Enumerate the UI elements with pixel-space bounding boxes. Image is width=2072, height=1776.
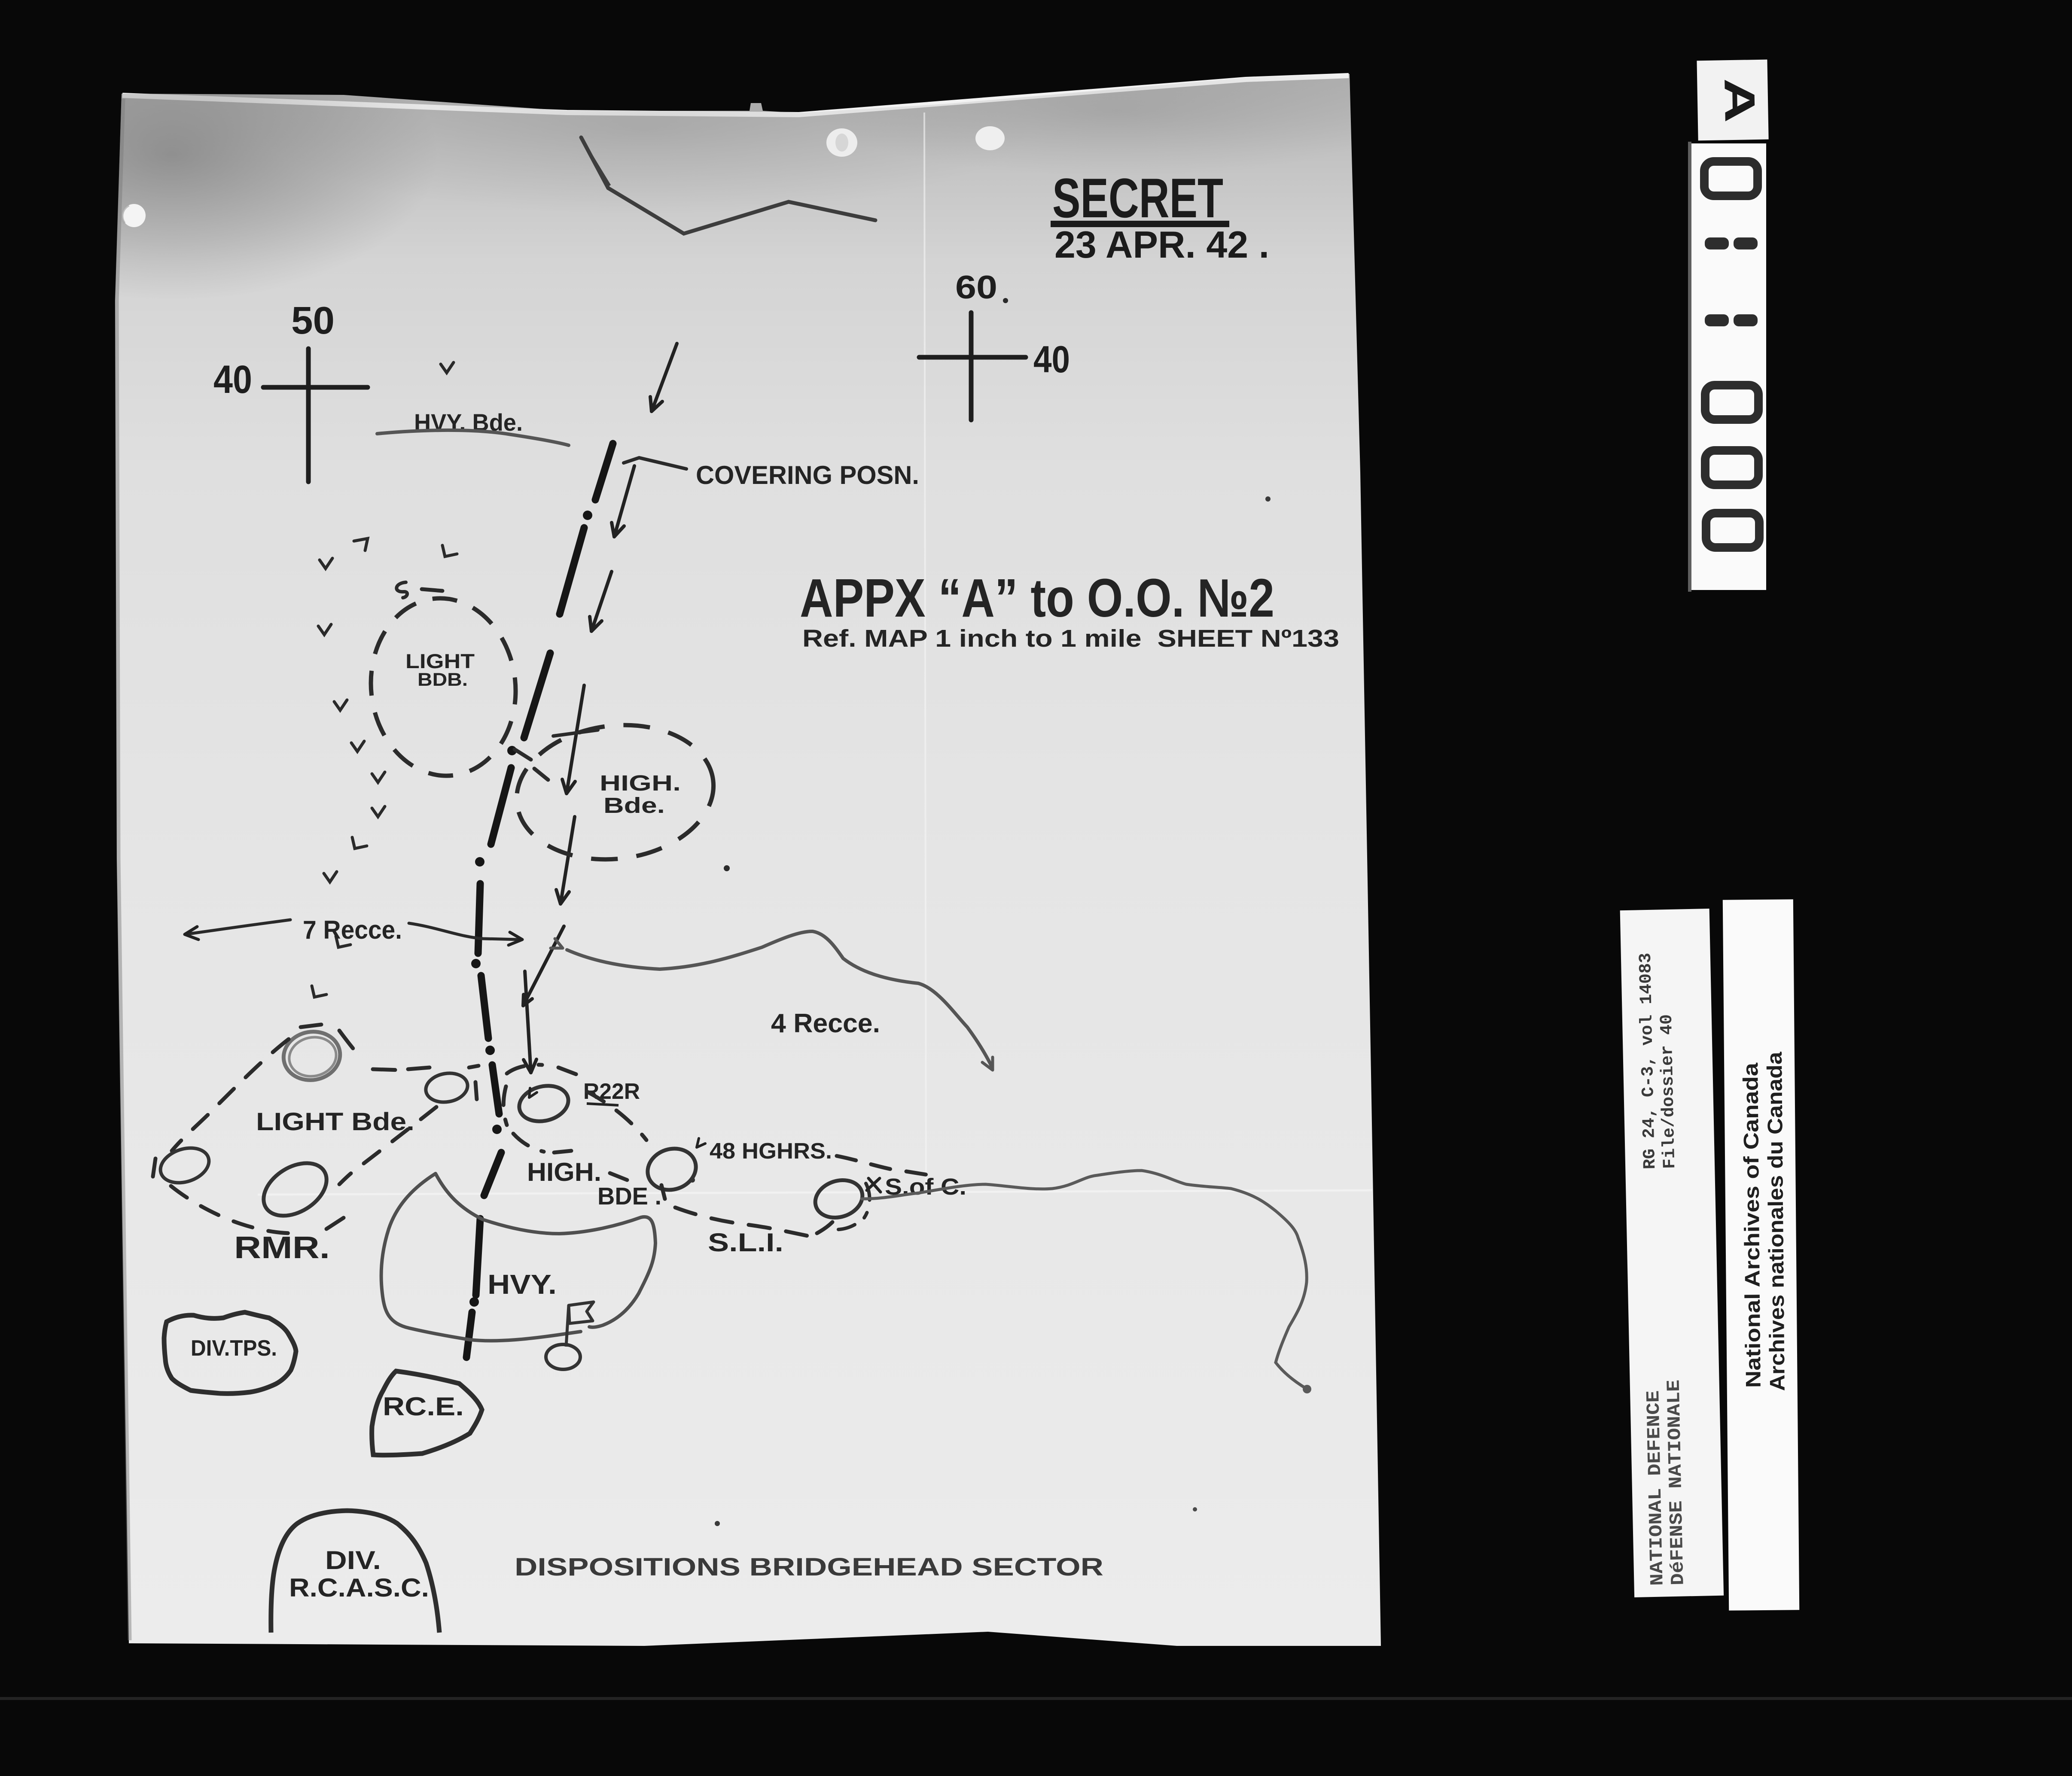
svg-text:60: 60 [955,269,997,306]
svg-text:R22R: R22R [583,1079,640,1104]
svg-text:SECRET: SECRET [1052,167,1223,229]
svg-text:BDB.: BDB. [417,669,468,690]
svg-text:HIGH.: HIGH. [527,1158,601,1186]
svg-text:7 Recce.: 7 Recce. [303,915,402,944]
svg-text:40: 40 [1033,338,1070,380]
svg-text:R.C.A.S.C.: R.C.A.S.C. [289,1573,429,1602]
svg-text:Bde.: Bde. [603,793,665,818]
svg-text:50: 50 [291,299,335,342]
svg-text:DIV.TPS.: DIV.TPS. [191,1336,277,1361]
svg-text:BDE .: BDE . [597,1183,661,1210]
svg-text:RC.E.: RC.E. [383,1392,464,1421]
svg-text:APPX “A” to O.O. №2: APPX “A” to O.O. №2 [800,568,1274,628]
svg-text:Ref. MAP 1 inch to 1 mile SHE: Ref. MAP 1 inch to 1 mile SHEET Nº133 [802,625,1339,652]
svg-text:File/dossier 40: File/dossier 40 [1658,1014,1680,1169]
svg-text:National Archives of Canada: National Archives of Canada [1739,1062,1765,1388]
svg-text:DISPOSITIONS BRIDGEHEAD SECTOR: DISPOSITIONS BRIDGEHEAD SECTOR [515,1553,1103,1581]
svg-text:HVY.: HVY. [488,1269,557,1300]
svg-text:40: 40 [213,358,252,401]
svg-text:DIV.: DIV. [325,1546,381,1575]
svg-text:A: A [1715,78,1764,123]
svg-text:23 APR. 42 .: 23 APR. 42 . [1054,223,1269,266]
svg-text:4 Recce.: 4 Recce. [771,1009,880,1038]
svg-text:DéFENSE NATIONALE: DéFENSE NATIONALE [1664,1379,1689,1585]
svg-text:S.L.I.: S.L.I. [708,1228,783,1257]
svg-text:RMR.: RMR. [234,1231,330,1265]
svg-text:Archives nationales du Canada: Archives nationales du Canada [1763,1052,1789,1391]
svg-text:HIGH.: HIGH. [600,771,681,795]
svg-text:48 HGHRS.: 48 HGHRS. [710,1139,832,1164]
svg-text:COVERING POSN.: COVERING POSN. [696,461,919,490]
svg-text:LIGHT Bde.: LIGHT Bde. [256,1108,414,1136]
